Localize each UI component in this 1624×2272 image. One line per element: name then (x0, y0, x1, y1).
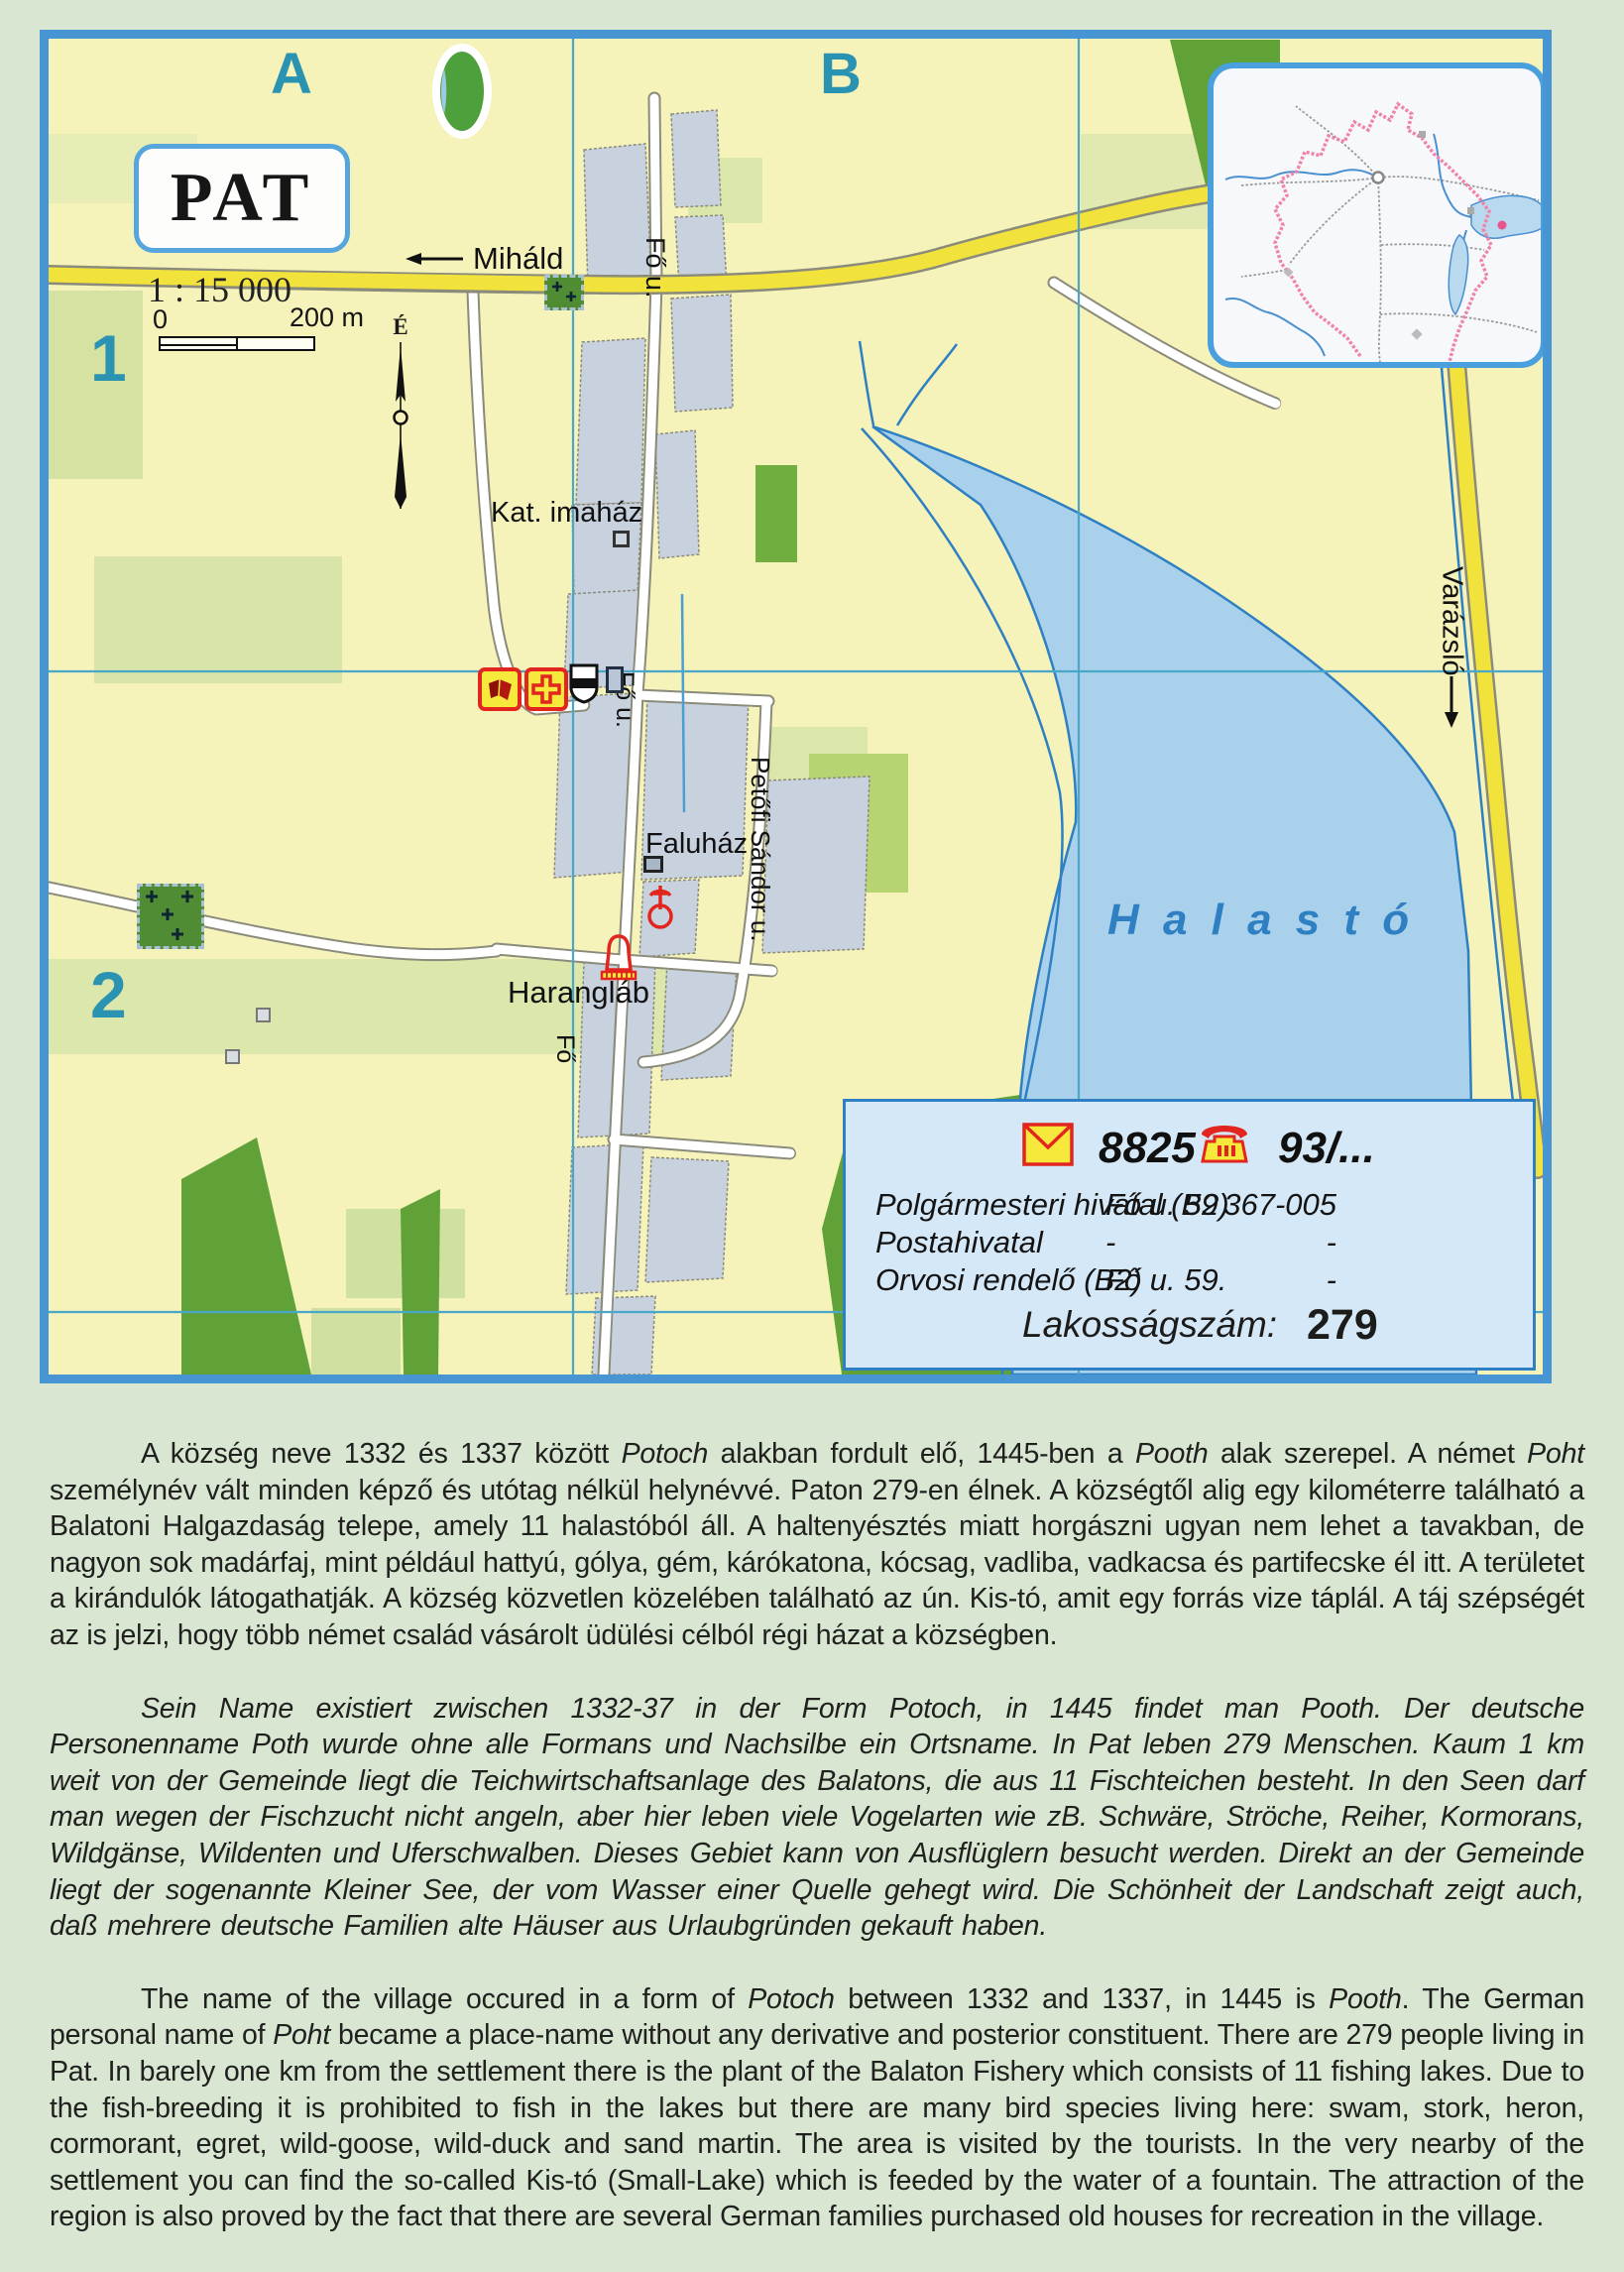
scalebar-right-half (238, 338, 313, 349)
population-label: Lakosságszám: (1022, 1304, 1277, 1346)
cemetery-icon-north (544, 275, 584, 310)
paragraph-hungarian: A község neve 1332 és 1337 között Potoch… (50, 1436, 1584, 1654)
inset-boundary (1275, 104, 1491, 362)
village-map: A B 1 2 PAT 1 : 15 000 0 200 m É Miháld … (40, 30, 1552, 1383)
label-halasto: Halastó (1107, 896, 1433, 945)
shield-glyph (568, 663, 600, 705)
direction-varazslo-label: Varázsló (1436, 566, 1468, 676)
inset-graphic (1214, 68, 1541, 362)
mail-icon (1022, 1122, 1074, 1167)
map-title-box: PAT (134, 144, 350, 253)
map-canvas: A B 1 2 PAT 1 : 15 000 0 200 m É Miháld … (49, 39, 1543, 1375)
postal-code: 8825 (1099, 1124, 1196, 1173)
direction-mihald-label: Miháld (473, 241, 563, 277)
map-title: PAT (171, 159, 314, 238)
building-icon-rural-1 (256, 1008, 271, 1022)
building-icon-center (606, 666, 624, 693)
scalebar-left-half (161, 338, 238, 349)
inset-village-marker (1498, 221, 1507, 230)
paragraph-german: Sein Name existiert zwischen 1332-37 in … (50, 1691, 1584, 1945)
map-scale-ratio: 1 : 15 000 (148, 269, 291, 310)
info-row-phone: - (1327, 1262, 1336, 1298)
cemetery-icon-west (137, 884, 204, 949)
building-icon-kat-imahaz (613, 531, 630, 547)
grid-col-b: B (820, 41, 862, 107)
library-icon (478, 667, 522, 711)
building-icon-rural-2 (225, 1049, 240, 1064)
phone-icon (1198, 1122, 1251, 1165)
direction-mihald: Miháld (406, 241, 563, 277)
info-row-address: Fő u. 59 (1105, 1187, 1218, 1223)
info-row-phone: 367-005 (1223, 1187, 1336, 1223)
street-label-fo-south: Fő (550, 1034, 579, 1063)
info-header: 8825 93/... (846, 1122, 1533, 1173)
grid-row-1: 1 (90, 320, 127, 396)
street-label-petofi-sandor: Petőfi Sándor u. (745, 757, 775, 941)
orb-cross-glyph (646, 884, 674, 931)
church-orb-icon (646, 884, 674, 936)
region-inset-map (1208, 62, 1543, 368)
info-row-name: Postahivatal (875, 1225, 1043, 1260)
open-book-glyph (485, 676, 515, 702)
town-hall-shield-icon (568, 663, 600, 710)
scalebar-end-label: 200 m (290, 302, 364, 333)
cemetery-cross-glyph (547, 278, 581, 307)
info-row-address: Fő u. 59. (1105, 1262, 1226, 1298)
north-label: É (388, 314, 413, 340)
info-row-name: Orvosi rendelő (B2) (875, 1262, 1142, 1298)
red-cross-glyph (531, 674, 561, 704)
direction-varazslo: Varázsló (1435, 566, 1468, 728)
grid-row-2: 2 (90, 957, 127, 1032)
pond-oval (432, 44, 492, 139)
bell-tower-icon (598, 932, 639, 987)
left-arrow-icon (406, 252, 463, 266)
scalebar-start-label: 0 (153, 304, 168, 335)
street-label-fo-u-north: Fő u. (639, 237, 670, 299)
pharmacy-cross-icon (524, 667, 568, 711)
north-arrow-icon (390, 340, 411, 511)
grid-col-a: A (271, 41, 312, 107)
building-icon-faluhaz (643, 856, 663, 873)
population-value: 279 (1307, 1301, 1378, 1350)
down-arrow-icon (1444, 676, 1459, 728)
bell-glyph (598, 932, 639, 982)
info-row-phone: - (1327, 1225, 1336, 1260)
description-text-block: A község neve 1332 és 1337 között Potoch… (50, 1436, 1584, 2272)
inset-rivers (1225, 134, 1471, 356)
phone-prefix: 93/... (1278, 1124, 1375, 1173)
north-indicator: É (388, 314, 413, 516)
info-row-address: - (1105, 1225, 1115, 1260)
cemetery-crosses-glyph (140, 887, 201, 946)
label-kat-imahaz: Kat. imaház (491, 497, 642, 530)
paragraph-english: The name of the village occured in a for… (50, 1981, 1584, 2235)
scalebar (159, 336, 315, 351)
village-info-box: 8825 93/... Polgármesteri hivatal (B2) F… (843, 1099, 1536, 1371)
